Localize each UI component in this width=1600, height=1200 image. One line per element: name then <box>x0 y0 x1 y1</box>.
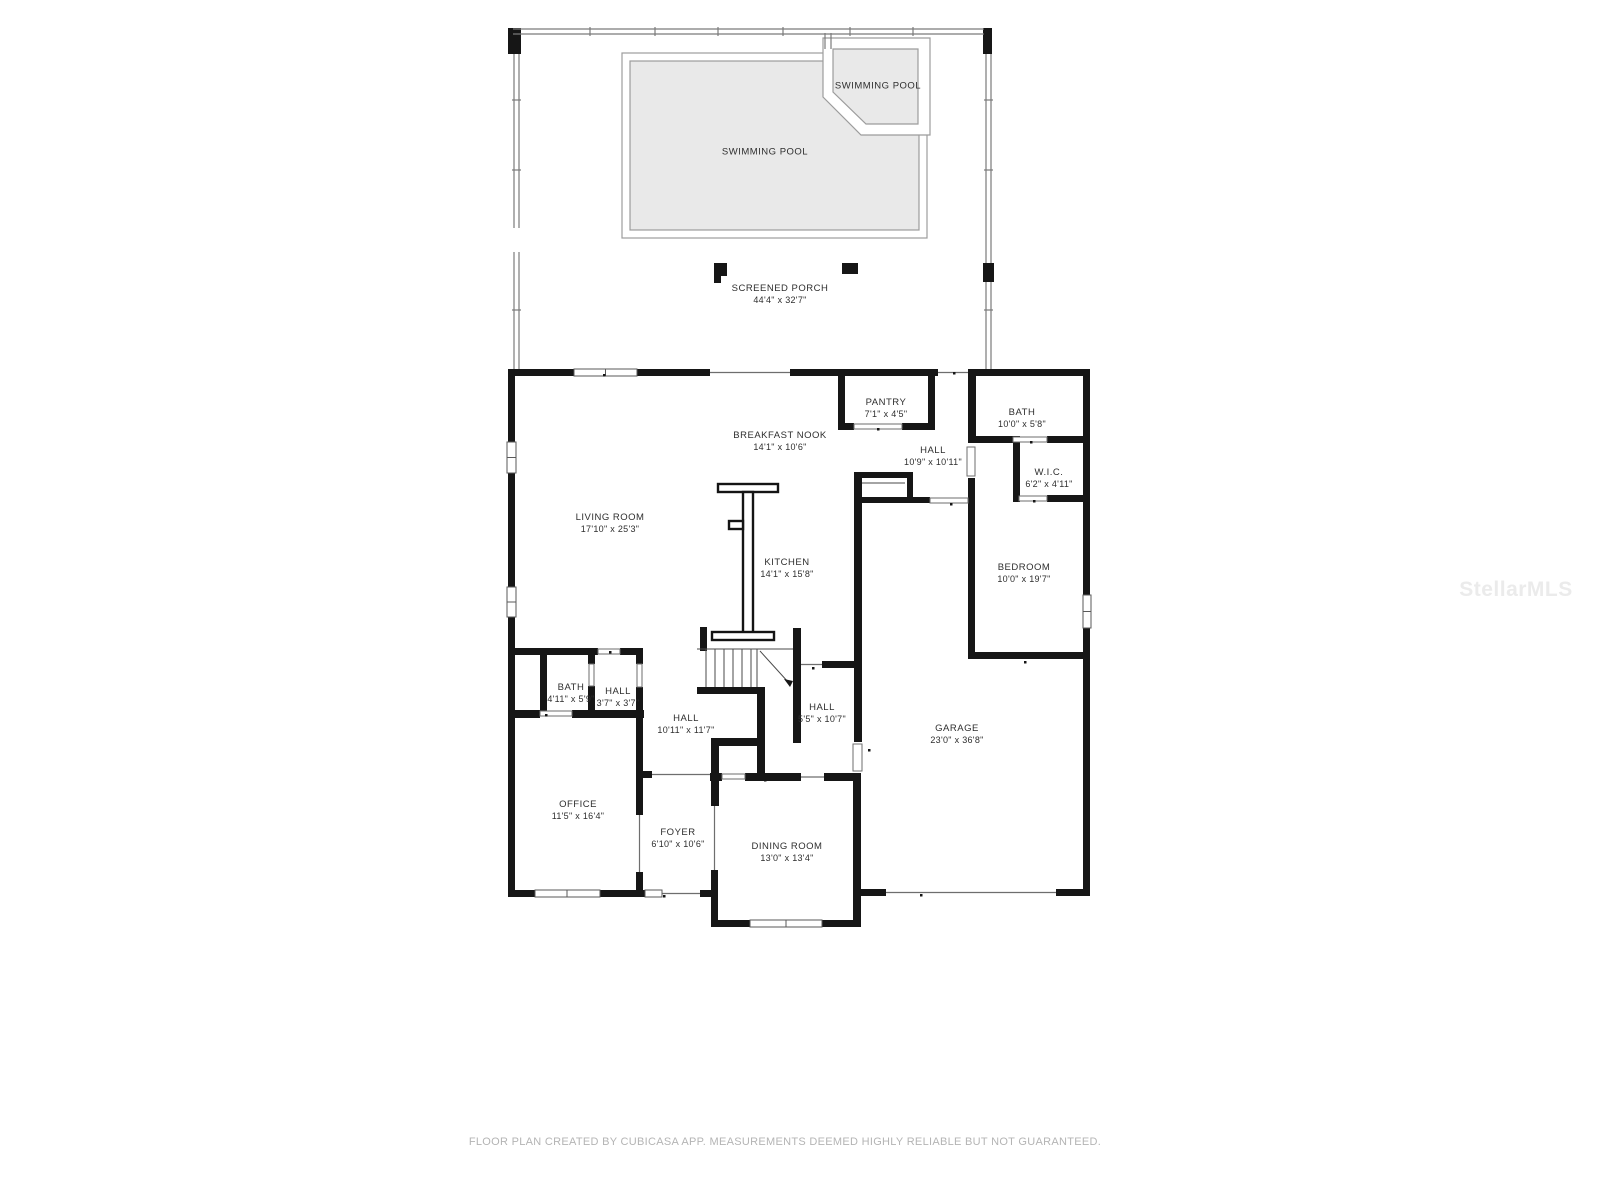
label-name: BEDROOM <box>998 562 1051 573</box>
room-label-screened-porch: SCREENED PORCH 44'4" x 32'7" <box>732 283 829 305</box>
label-dims: 4'11" x 5'9" <box>547 694 594 704</box>
room-label-living-room: LIVING ROOM 17'10" x 25'3" <box>576 512 645 534</box>
stairs <box>697 649 793 687</box>
label-dims: 23'0" x 36'8" <box>930 735 983 745</box>
room-label-wic: W.I.C. 6'2" x 4'11" <box>1025 467 1072 489</box>
label-name: LIVING ROOM <box>576 512 645 523</box>
room-label-foyer: FOYER 6'10" x 10'6" <box>651 827 704 849</box>
label-name: BATH <box>558 682 585 693</box>
room-label-spa-pool: SWIMMING POOL <box>835 81 921 92</box>
label-name: HALL <box>920 445 946 456</box>
label-dims: 6'10" x 10'6" <box>651 839 704 849</box>
label-name: BATH <box>1009 407 1036 418</box>
label-name: W.I.C. <box>1035 467 1064 478</box>
label-dims: 6'2" x 4'11" <box>1025 479 1072 489</box>
swimming-pool-shape <box>622 33 930 238</box>
label-name: SWIMMING POOL <box>722 147 808 158</box>
porch-column <box>842 263 858 274</box>
label-dims: 3'7" x 3'7" <box>597 698 640 708</box>
label-name: HALL <box>605 686 631 697</box>
room-label-bath-upper: BATH 10'0" x 5'8" <box>998 407 1046 429</box>
label-dims: 14'1" x 15'8" <box>760 569 813 579</box>
room-label-office: OFFICE 11'5" x 16'4" <box>552 799 605 821</box>
room-label-kitchen: KITCHEN 14'1" x 15'8" <box>760 557 813 579</box>
label-dims: 10'9" x 10'11" <box>904 457 962 467</box>
label-dims: 10'0" x 19'7" <box>997 574 1050 584</box>
label-name: HALL <box>673 713 699 724</box>
label-name: BREAKFAST NOOK <box>733 430 826 441</box>
label-dims: 11'5" x 16'4" <box>552 811 605 821</box>
label-name: SWIMMING POOL <box>835 81 921 92</box>
disclaimer-text: FLOOR PLAN CREATED BY CUBICASA APP. MEAS… <box>469 1136 1101 1148</box>
label-dims: 5'5" x 10'7" <box>798 714 846 724</box>
label-name: GARAGE <box>935 723 979 734</box>
room-label-main-pool: SWIMMING POOL <box>722 147 808 158</box>
room-label-hall-upper: HALL 10'9" x 10'11" <box>904 445 962 467</box>
label-dims: 17'10" x 25'3" <box>581 524 640 534</box>
room-label-bath-lower: BATH 4'11" x 5'9" <box>547 682 594 704</box>
label-name: HALL <box>809 702 835 713</box>
floor-plan-page: SWIMMING POOL SWIMMING POOL SCREENED POR… <box>0 0 1600 1200</box>
label-name: OFFICE <box>559 799 597 810</box>
room-label-hall-center: HALL 10'11" x 11'7" <box>657 713 714 735</box>
label-dims: 10'0" x 5'8" <box>998 419 1046 429</box>
floor-plan-drawing <box>0 0 1600 1200</box>
label-name: SCREENED PORCH <box>732 283 829 294</box>
label-name: PANTRY <box>866 397 907 408</box>
label-dims: 10'11" x 11'7" <box>657 725 714 735</box>
room-label-breakfast-nook: BREAKFAST NOOK 14'1" x 10'6" <box>733 430 826 452</box>
label-name: KITCHEN <box>764 557 809 568</box>
room-label-hall-right: HALL 5'5" x 10'7" <box>798 702 846 724</box>
room-label-pantry: PANTRY 7'1" x 4'5" <box>865 397 908 419</box>
room-label-garage: GARAGE 23'0" x 36'8" <box>930 723 983 745</box>
room-label-dining-room: DINING ROOM 13'0" x 13'4" <box>752 841 823 863</box>
stellar-mls-watermark: StellarMLS <box>1459 578 1573 602</box>
label-dims: 7'1" x 4'5" <box>865 409 908 419</box>
room-label-hall-small: HALL 3'7" x 3'7" <box>597 686 640 708</box>
porch-column <box>714 263 727 276</box>
label-dims: 44'4" x 32'7" <box>753 295 806 305</box>
label-dims: 14'1" x 10'6" <box>753 442 806 452</box>
label-dims: 13'0" x 13'4" <box>760 853 813 863</box>
label-name: FOYER <box>660 827 695 838</box>
room-label-bedroom: BEDROOM 10'0" x 19'7" <box>997 562 1050 584</box>
label-name: DINING ROOM <box>752 841 823 852</box>
